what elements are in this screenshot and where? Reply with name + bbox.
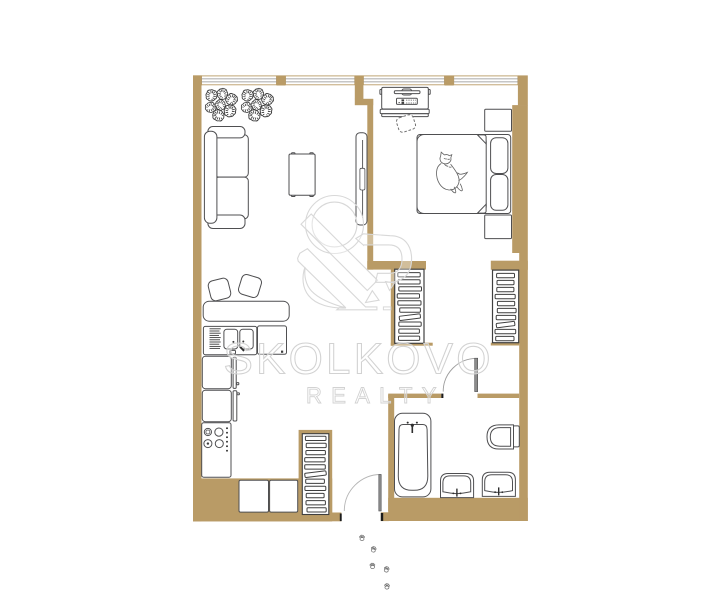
svg-text:SKOLKOVO: SKOLKOVO <box>224 334 494 383</box>
svg-text:REALTY: REALTY <box>306 383 446 408</box>
